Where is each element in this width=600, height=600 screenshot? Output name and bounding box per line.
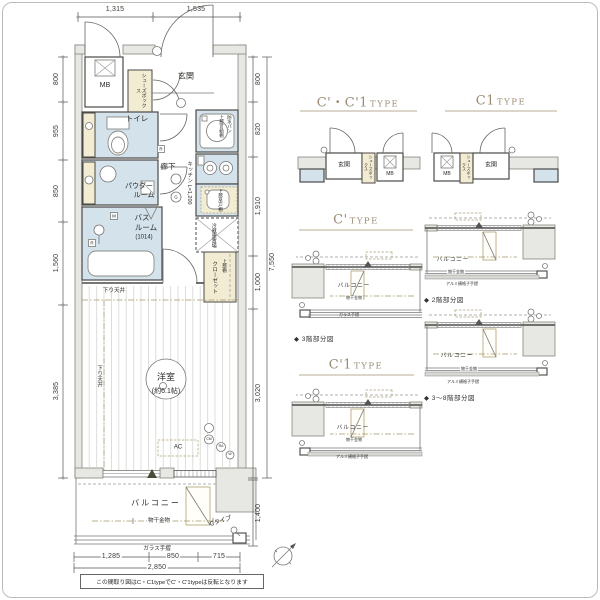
room-label-western-room: 洋室	[157, 372, 175, 382]
dim-balcony-height: 1,400	[255, 504, 263, 523]
label-closet-upper-shelf: 上部棚	[222, 257, 227, 275]
mini-label-shoes-p2: シューズボックス	[462, 154, 471, 180]
dim-left-4: 1,560	[53, 254, 61, 273]
mini-label-glassrail-cdash: ガラス手摺	[339, 313, 359, 317]
room-label-bath-1: バス	[135, 214, 150, 222]
caption-3f-partial: ◆ 3階部分図	[294, 333, 334, 343]
label-lowered-ceiling-v: 下り天井	[96, 361, 102, 391]
label-upper-cupboard: 上部吊戸棚	[218, 187, 223, 213]
dim-right-3: 1,910	[255, 197, 263, 216]
mini-label-balcony-cdash: バルコニー	[338, 283, 370, 289]
mini-label-laundry-3to8f: 物干金物	[460, 367, 478, 371]
room-label-shoes-box: シューズボックス	[134, 71, 145, 109]
dim-left-5: 3,385	[53, 382, 61, 401]
mini-label-mb-p1: MB	[386, 172, 394, 178]
mini-label-entrance-p1: 玄関	[338, 163, 350, 170]
room-label-bath-size: (1014)	[135, 235, 152, 242]
room-label-entrance: 玄関	[178, 73, 194, 82]
dim-top-2: 1,535	[187, 6, 206, 14]
dim-right-5: 3,020	[255, 384, 263, 403]
room-label-western-room-size: (約6.1帖)	[152, 388, 180, 396]
mini-plan-balcony-3to8f	[425, 309, 555, 376]
dim-left-3: 850	[53, 185, 61, 197]
mini-label-shoes-p1: シューズボックス	[364, 154, 373, 180]
room-label-balcony: バルコニー	[131, 500, 181, 509]
symbol-cm-outlet: CM	[206, 438, 211, 442]
room-label-powder-2: ルーム	[134, 192, 155, 200]
label-fridge-space: 冷蔵庫置場	[210, 220, 216, 250]
symbol-m-powder: M	[112, 213, 116, 218]
mini-label-alumirail-cdash1: アルミ横格子手摺	[336, 455, 368, 459]
dim-left-1: 800	[53, 73, 61, 85]
dim-left-2: 955	[53, 125, 61, 137]
label-waterproof-pan: 防水パン	[227, 113, 232, 135]
panel-heading-c-cdash1: C'・C'1 TYPE	[317, 92, 400, 111]
dim-bottom-3: 715	[212, 553, 226, 561]
symbol-r-bath: R	[90, 240, 93, 245]
mini-label-balcony-3to8f: バルコニー	[441, 353, 473, 359]
mini-label-balcony-2f: バルコニー	[437, 257, 469, 263]
dim-top-1: 1,315	[106, 6, 125, 14]
label-glass-handrail: ガラス手摺	[143, 546, 170, 552]
symbol-ra-outlet: RA	[219, 445, 224, 449]
mini-label-laundry-cdash: 物干金物	[345, 296, 363, 300]
floorplan-drawing	[0, 0, 600, 600]
symbol-r-toilet: R	[159, 146, 162, 151]
room-label-hallway: 廊下	[161, 163, 176, 171]
panel-underlines	[299, 111, 557, 375]
dim-right-2: 820	[255, 123, 263, 135]
caption-2f-partial: ◆ 2階部分図	[424, 294, 464, 304]
floorplan-page: 1,315 1,535 800 955 850 1,560 3,385 800 …	[0, 0, 600, 600]
mini-label-alumirail-3to8f: アルミ横格子手摺	[447, 380, 479, 384]
mini-label-laundry-2f: 物干金物	[447, 270, 465, 274]
panel-heading-c1: C1 TYPE	[476, 94, 526, 109]
mini-plan-balcony-2f	[425, 212, 555, 279]
symbol-w-outlet: W	[228, 453, 231, 457]
room-label-mb: MB	[100, 82, 111, 90]
panel-heading-c1-code: C1	[476, 94, 495, 109]
mini-label-alumirail-2f: アルミ横格子手摺	[446, 282, 478, 286]
dim-right-4: 1,000	[255, 273, 263, 292]
dim-right-total: 7,550	[269, 253, 277, 272]
dim-bottom-total: 2,850	[147, 564, 168, 572]
label-upper-movable-shelf: 上部可動棚	[219, 112, 224, 140]
mini-plan-balcony-cdash1	[292, 389, 422, 456]
symbol-g-hall: G	[174, 194, 178, 199]
panel-heading-cdash-word: TYPE	[350, 217, 379, 227]
dim-bottom-1: 1,285	[101, 553, 122, 561]
label-laundry-hardware: 物干金物	[147, 518, 171, 524]
room-label-kitchen: キッチン L=1,200	[186, 149, 192, 217]
panel-heading-cdash1-code: C'1	[329, 358, 352, 373]
panel-heading-c-cdash1-code: C'・C'1	[317, 92, 368, 111]
mini-label-mb-p2: MB	[443, 172, 451, 178]
room-label-bath-2: ルーム	[135, 224, 157, 232]
room-label-toilet: トイレ	[126, 115, 149, 123]
panel-heading-c1-word: TYPE	[497, 98, 526, 108]
floorplan-note: この間取り図はC・C1typeでC'・C'1typeは反転となります	[80, 574, 264, 589]
mini-label-entrance-p2: 玄関	[485, 163, 497, 170]
panel-heading-cdash1: C'1 TYPE	[329, 358, 384, 373]
room-label-powder-1: パウダー	[125, 183, 153, 191]
panel-heading-c-cdash1-word: TYPE	[370, 100, 399, 110]
compass-icon	[272, 543, 296, 567]
room-label-closet: クローゼット	[211, 255, 217, 299]
dim-bottom-2: 850	[166, 553, 180, 561]
panel-heading-cdash1-word: TYPE	[354, 362, 383, 372]
dim-right-1: 800	[255, 73, 263, 85]
mini-label-balcony-cdash1: バルコニー	[337, 425, 369, 431]
label-lowered-ceiling-h: 下り天井	[103, 288, 125, 294]
mini-label-laundry-cdash1: 物干金物	[345, 438, 363, 442]
label-ac-unit: AC	[174, 445, 182, 452]
mini-plan-entrance-mirrored	[298, 128, 420, 183]
panel-heading-cdash-code: C'	[333, 213, 348, 228]
panel-heading-cdash: C' TYPE	[333, 213, 379, 228]
caption-3to8f-partial: ◆ 3〜8階部分図	[424, 392, 475, 402]
